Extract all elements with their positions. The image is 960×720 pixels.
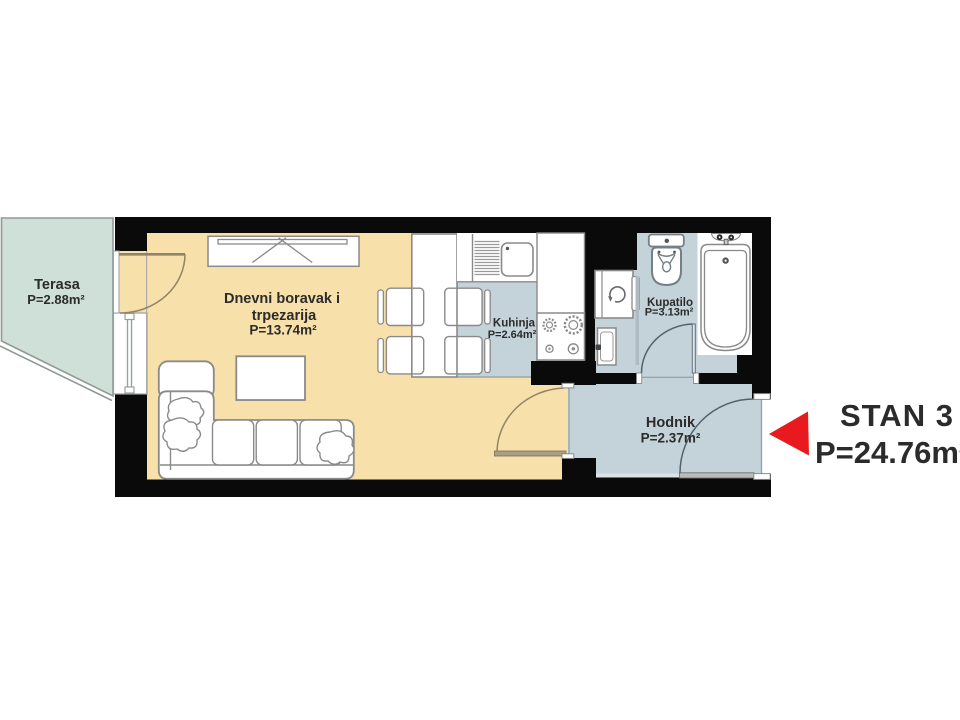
svg-text:P=13.74m²: P=13.74m²	[249, 323, 317, 338]
svg-text:P=24.76m²: P=24.76m²	[815, 435, 960, 470]
svg-text:P=3.13m²: P=3.13m²	[645, 307, 694, 319]
svg-text:Kuhinja: Kuhinja	[493, 318, 536, 330]
svg-text:STAN 3: STAN 3	[840, 398, 954, 433]
svg-text:P=2.88m²: P=2.88m²	[27, 292, 85, 307]
svg-text:Terasa: Terasa	[34, 277, 81, 293]
svg-text:P=2.37m²: P=2.37m²	[641, 431, 701, 446]
svg-text:Hodnik: Hodnik	[646, 415, 696, 431]
svg-text:P=2.64m²: P=2.64m²	[488, 329, 537, 341]
svg-text:Dnevni boravak i: Dnevni boravak i	[224, 291, 340, 307]
